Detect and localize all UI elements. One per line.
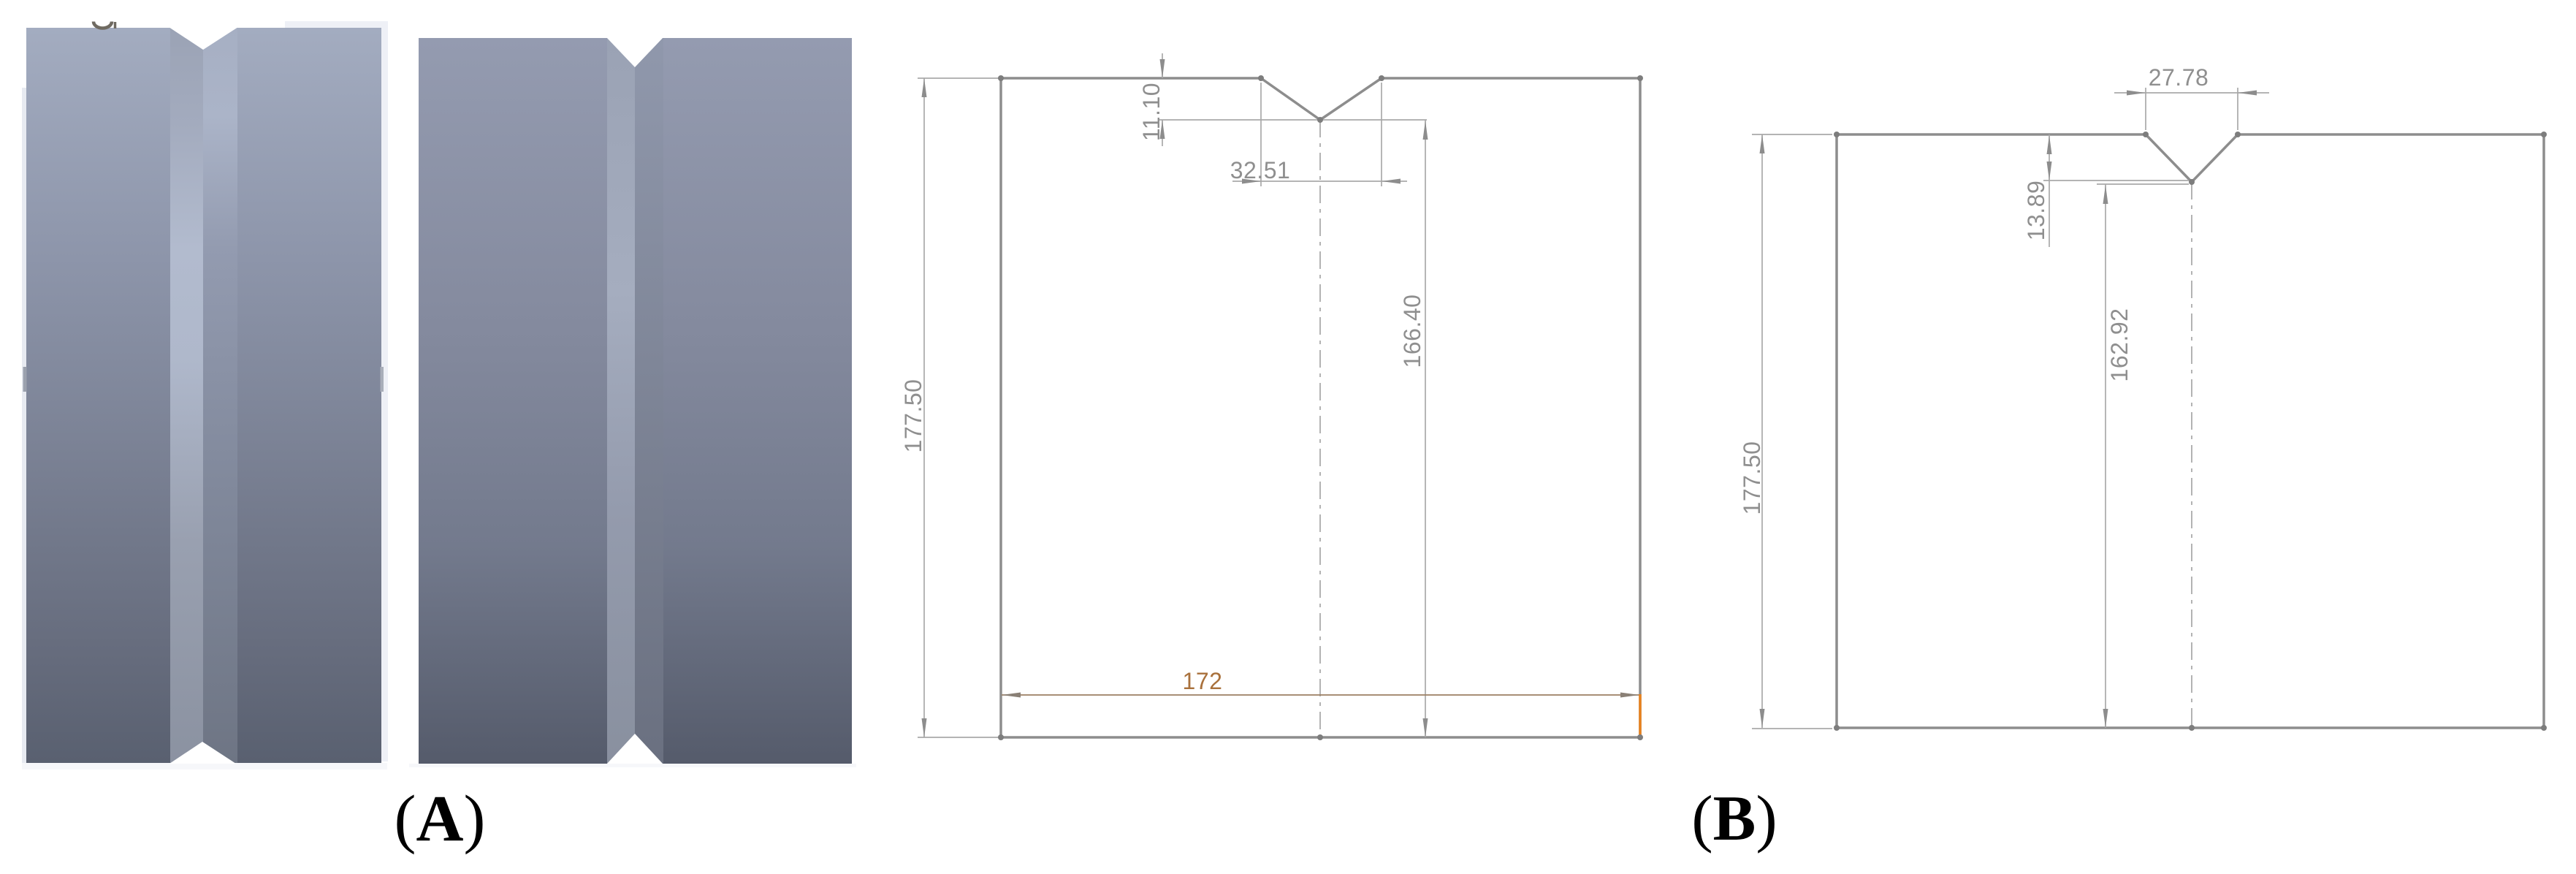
svg-text:27.78: 27.78 bbox=[2149, 64, 2209, 91]
svg-text:(B): (B) bbox=[1691, 783, 1777, 854]
svg-text:(A): (A) bbox=[395, 783, 486, 855]
svg-text:162.92: 162.92 bbox=[2106, 308, 2133, 382]
svg-text:172: 172 bbox=[1183, 668, 1223, 694]
svg-text:13.89: 13.89 bbox=[2023, 180, 2049, 241]
svg-text:166.40: 166.40 bbox=[1399, 294, 1425, 368]
svg-text:11.10: 11.10 bbox=[1138, 83, 1165, 141]
svg-text:177.50: 177.50 bbox=[900, 379, 926, 453]
svg-text:177.50: 177.50 bbox=[1739, 441, 1765, 515]
svg-text:32.51: 32.51 bbox=[1230, 157, 1291, 183]
